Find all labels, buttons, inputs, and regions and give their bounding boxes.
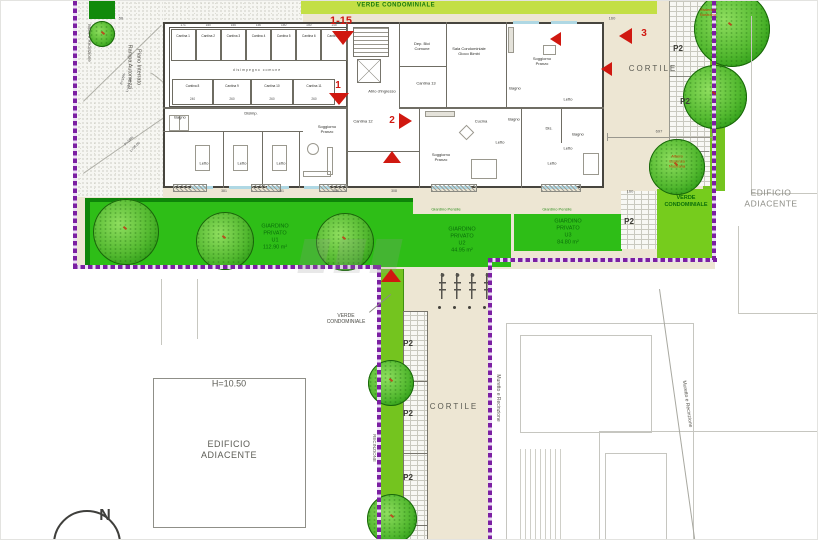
- wall-line: [399, 22, 400, 107]
- bed: [471, 159, 497, 179]
- muretto-recinzione-label: Muretto e Recinzione: [495, 374, 501, 421]
- wall-line: [299, 131, 300, 188]
- wall-line: [419, 107, 420, 188]
- unit-marker-label: 1-15: [330, 15, 352, 29]
- elevator: [357, 59, 381, 83]
- verde-condominiale-right-label: VERDE CONDOMINIALE: [664, 195, 707, 209]
- threshold: [319, 184, 347, 192]
- wall-line: [399, 107, 604, 109]
- wall-line: [163, 131, 303, 132]
- parking-strip-driveway: [403, 311, 428, 540]
- faint-line: [197, 279, 198, 339]
- dim-line-697: [607, 137, 713, 138]
- north-arrow-icon: [53, 510, 121, 540]
- wall-line: [223, 131, 224, 188]
- recinzione-label: RECINZIONE: [371, 434, 377, 462]
- bed: [583, 153, 599, 175]
- adjacent-building-outline: [520, 335, 652, 433]
- edificio-box-label: EDIFICIO ADIACENTE: [201, 439, 257, 462]
- table: [543, 45, 556, 55]
- boundary-segment: [712, 1, 716, 260]
- boundary-segment: [488, 258, 492, 540]
- stall-divider: [403, 525, 428, 526]
- unit-marker-arrow: [329, 93, 349, 105]
- muro-recinzione-label: Muro e Recinzione: [86, 24, 92, 62]
- north-label: N: [99, 506, 111, 526]
- threshold: [431, 184, 477, 192]
- bed: [195, 145, 210, 171]
- entrance-arrow: [381, 269, 401, 282]
- faint-line: [161, 279, 162, 345]
- cortile-bottom-label: CORTILE: [430, 402, 479, 412]
- garden-u3-label: GIARDINO PRIVATO U3 84.80 m²: [554, 218, 581, 246]
- garden-u1-hedge-top: [85, 198, 413, 202]
- garden-strip-label: Giardino Pensile: [431, 207, 460, 212]
- adjacent-building-windows: [520, 449, 562, 540]
- dim-tick: [607, 133, 608, 141]
- adjacent-building-outline: [605, 453, 667, 540]
- kitchen-counter: [508, 27, 514, 53]
- wall-line: [163, 107, 346, 109]
- tree-species-label: Essenza Nostrana: [700, 7, 716, 17]
- unit-marker-arrow: [550, 32, 561, 46]
- window: [513, 21, 539, 24]
- green-strip-driveway: [379, 269, 404, 540]
- green-patch-topleft: [89, 1, 115, 19]
- wall-line: [506, 22, 507, 107]
- boundary-segment: [73, 1, 77, 267]
- unit-marker-arrow: [399, 113, 412, 129]
- cortile-top-label: CORTILE: [629, 64, 678, 74]
- rampa-label: Piano Interrato: [135, 49, 142, 85]
- garden-u1-hedge-left: [85, 198, 90, 267]
- verde-band-label: VERDE CONDOMINIALE: [357, 2, 435, 10]
- stall-divider: [403, 381, 428, 382]
- boundary-segment: [488, 258, 717, 262]
- dim-tick: [712, 133, 713, 141]
- unit-marker-arrow: [601, 62, 612, 76]
- threshold: [251, 184, 281, 192]
- table-round: [307, 143, 319, 155]
- unit-marker-label: 3: [641, 28, 647, 41]
- threshold: [173, 184, 207, 192]
- garden-u1: [85, 201, 413, 267]
- entrance-arrow: [383, 151, 401, 163]
- faint-line: [738, 313, 818, 314]
- window: [229, 186, 251, 189]
- unit-marker-label: 1: [335, 80, 341, 93]
- verde-band-top: [301, 1, 657, 14]
- kitchen-counter: [169, 115, 189, 131]
- verde-condominiale-left-label: VERDE CONDOMINIALE: [327, 313, 366, 326]
- dim-label: 160: [627, 189, 634, 194]
- boundary-segment: [377, 265, 381, 540]
- wall-line: [446, 22, 447, 107]
- faint-line: [751, 16, 752, 193]
- bed: [233, 145, 248, 171]
- stall-divider: [403, 453, 428, 454]
- wall-line: [262, 131, 263, 188]
- threshold: [541, 184, 581, 192]
- sofa: [327, 147, 333, 175]
- parking-strip-midright: [621, 191, 657, 249]
- wall-line: [561, 107, 562, 143]
- unit-marker-label: 2: [389, 115, 395, 128]
- stall-divider: [669, 76, 709, 77]
- unit-marker-arrow: [619, 28, 632, 44]
- window: [551, 21, 577, 24]
- ramp-area-top: [163, 1, 303, 22]
- tree-species-label: Albero Essenza Nostrana: [669, 154, 685, 169]
- dim-label: 160: [609, 16, 616, 21]
- edificio-adiacente-right-label: EDIFICIO ADIACENTE: [744, 187, 797, 208]
- stall-divider: [669, 151, 709, 152]
- dim-label: 56: [119, 16, 123, 21]
- garden-u1-label: GIARDINO PRIVATO U1 112.90 m²: [261, 223, 288, 251]
- unit-marker-arrow: [332, 31, 354, 45]
- wall-line: [399, 66, 446, 67]
- bed: [272, 145, 287, 171]
- site-plan: VERDE CONDOMINIALE CORTILE CORTILE Muret…: [0, 0, 818, 540]
- wall-line: [521, 107, 522, 188]
- dim-label: 697: [656, 129, 663, 134]
- edificio-box-height-label: H=10.50: [212, 378, 246, 389]
- staircase: [353, 27, 389, 57]
- garden-strip-label: Giardino Pensile: [542, 207, 571, 212]
- garden-u2-label: GIARDINO PRIVATO U2 44.95 m²: [448, 226, 475, 254]
- kitchen-counter: [425, 111, 455, 117]
- corridor-label: disimpegno comune: [233, 68, 281, 72]
- faint-line: [738, 226, 739, 313]
